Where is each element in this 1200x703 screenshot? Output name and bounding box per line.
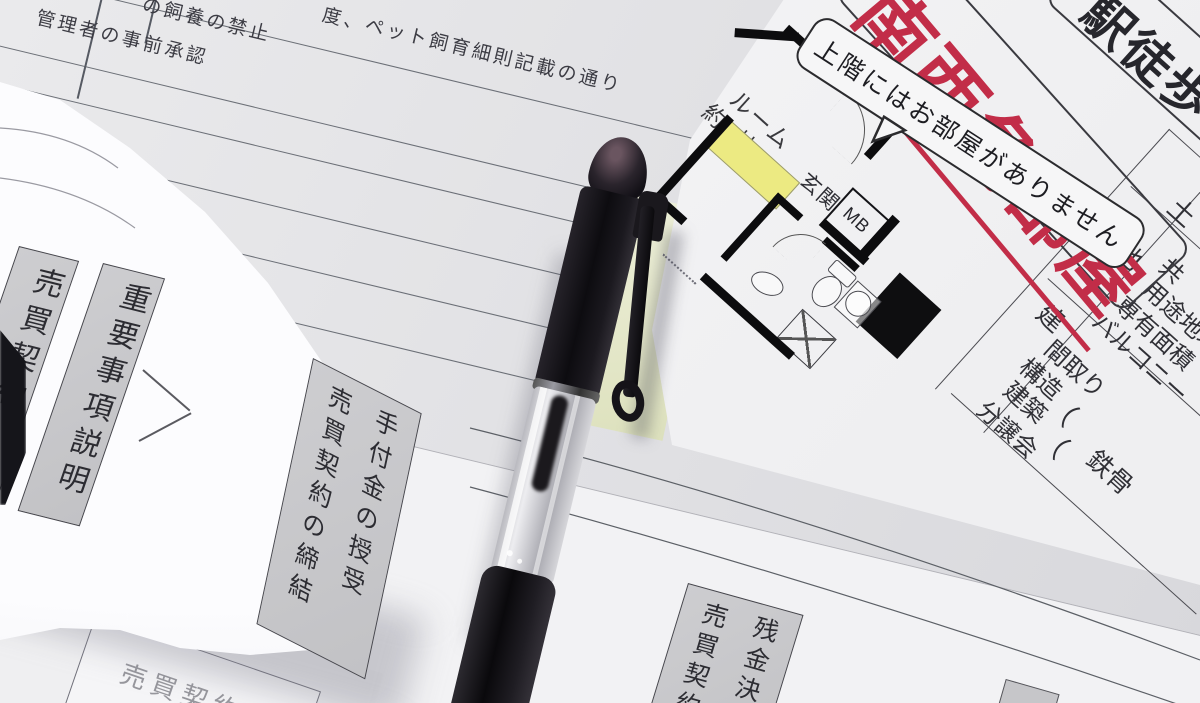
- page-curve-lines: [0, 0, 400, 300]
- pen-bubble: [506, 550, 513, 557]
- pen-bubble: [517, 558, 523, 564]
- washer-pan-icon: [776, 309, 837, 370]
- bath-door-arc-icon: [772, 218, 826, 272]
- basin-icon: [747, 267, 787, 301]
- photo-scene: の飼養の禁止 度、ペット飼育細則記載の通り 管理者の事前承認 残金決済 売買契約…: [0, 0, 1200, 703]
- table-steel-note: 鉄骨: [1079, 440, 1142, 502]
- table-paren2: （: [1030, 418, 1078, 466]
- wall: [721, 192, 784, 261]
- meter-box-label: MB: [839, 203, 875, 238]
- highlight-closet: [708, 121, 800, 209]
